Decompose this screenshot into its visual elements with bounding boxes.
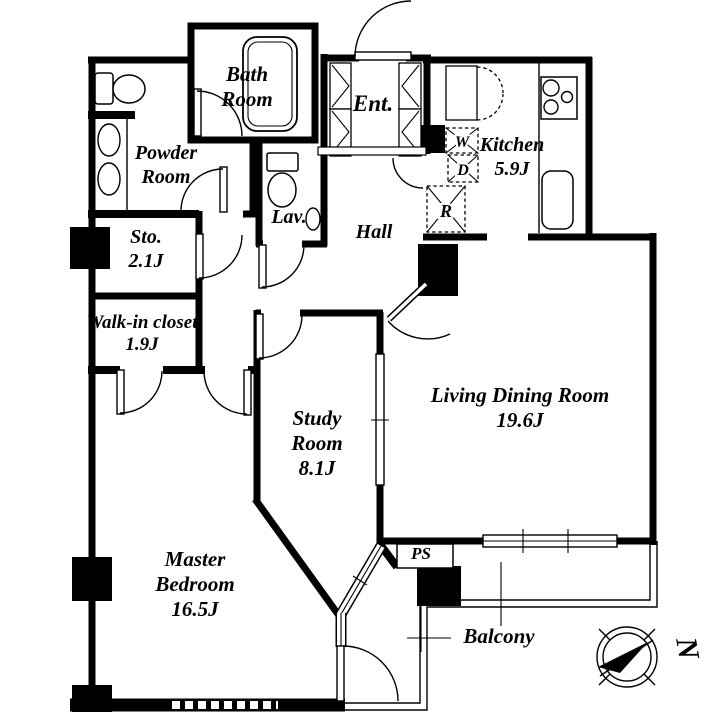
- toilet-powder: [95, 73, 145, 104]
- structural-pillars: [70, 227, 461, 712]
- entrance-step: [318, 147, 426, 155]
- bedroom-balcony-door: [337, 646, 398, 701]
- storage-door: [196, 234, 242, 279]
- compass: N: [597, 627, 706, 687]
- room-label-balcony: Balcony: [451, 624, 547, 649]
- stove: [541, 77, 577, 119]
- walk-in-closet-door: [117, 370, 162, 414]
- compass-north-label: N: [669, 634, 706, 663]
- toilet-lavatory: [267, 153, 298, 207]
- room-label-lavatory: Lav.: [260, 206, 318, 230]
- entrance-door: [355, 1, 411, 60]
- room-label-hall: Hall: [340, 221, 408, 245]
- floor-plan: N W D R Bath Room Powder Room Ent. Kitch…: [0, 0, 720, 720]
- toilet-nook-wall: [88, 111, 135, 119]
- kitchen-cabinet: [446, 66, 503, 120]
- room-label-living-dining: Living Dining Room 19.6J: [398, 383, 642, 433]
- room-label-study: Study Room 8.1J: [270, 406, 364, 480]
- study-diagonal-window: [340, 546, 381, 616]
- room-label-walk-in-closet: Walk-in closet 1.9J: [84, 312, 200, 357]
- lavatory-door: [259, 245, 304, 288]
- room-label-kitchen: Kitchen 5.9J: [460, 134, 564, 181]
- room-label-master-bedroom: Master Bedroom 16.5J: [138, 547, 252, 621]
- room-label-entrance: Ent.: [338, 90, 408, 117]
- room-label-powder: Powder Room: [113, 142, 219, 189]
- room-label-bath: Bath Room: [200, 62, 294, 112]
- master-bedroom-door: [204, 370, 251, 415]
- study-ldr-sliding-door[interactable]: [371, 354, 389, 485]
- hall-closet-door: [393, 158, 423, 188]
- study-door: [256, 314, 302, 359]
- room-label-pipe-shaft: PS: [399, 544, 443, 564]
- ldr-balcony-window: [483, 529, 617, 553]
- room-label-storage: Sto. 2.1J: [103, 226, 189, 273]
- refrigerator-label: R: [439, 201, 452, 221]
